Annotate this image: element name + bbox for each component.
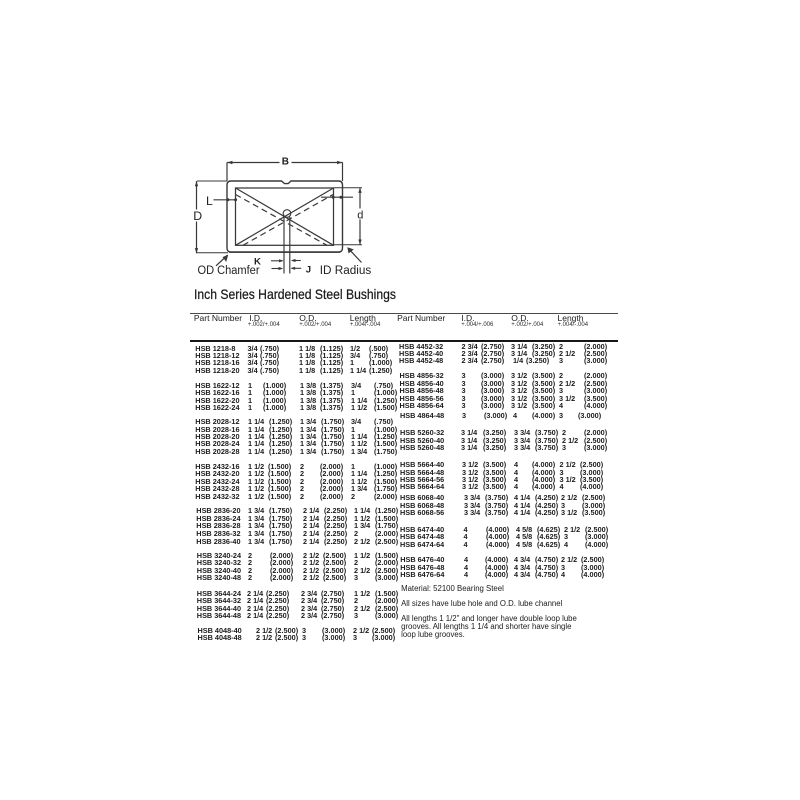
svg-text:d: d xyxy=(357,209,363,221)
svg-text:ID Radius: ID Radius xyxy=(320,265,372,277)
svg-text:J: J xyxy=(306,265,311,276)
svg-text:L: L xyxy=(206,194,213,208)
svg-text:OD Chamfer: OD Chamfer xyxy=(198,265,260,277)
svg-text:D: D xyxy=(193,209,202,223)
svg-text:B: B xyxy=(282,156,289,167)
